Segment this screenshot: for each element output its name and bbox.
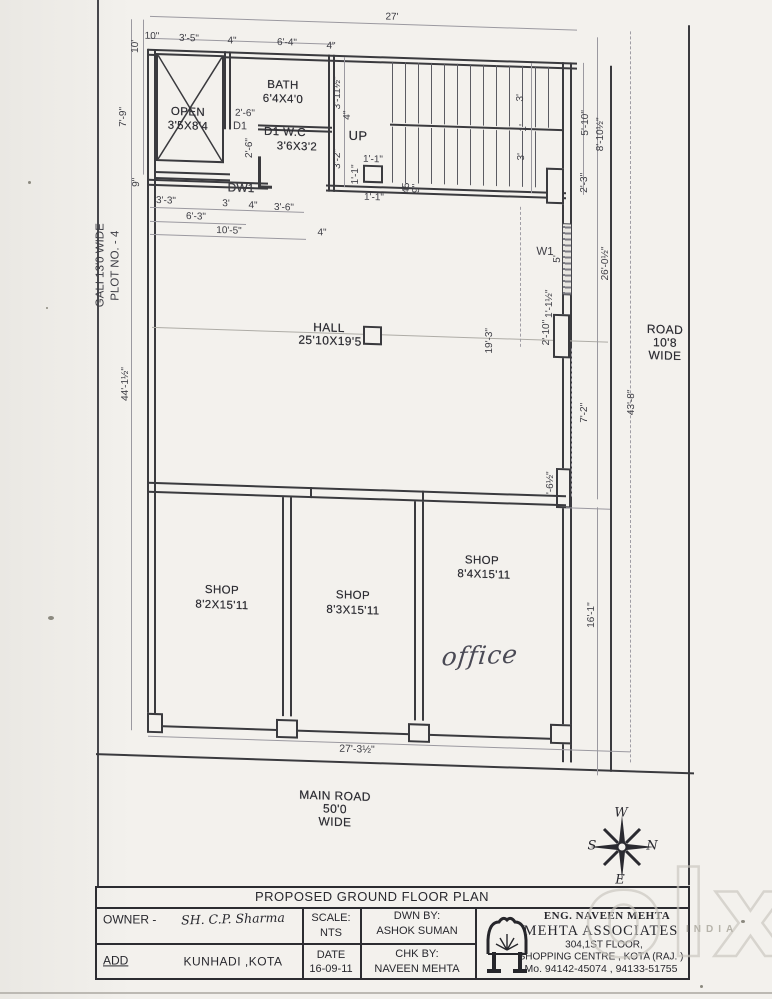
dimension-label: 1' [519, 124, 529, 132]
checked-by-label: CHK BY: [395, 948, 438, 960]
road-label: 50'0 [323, 802, 347, 815]
dimension-label: 5' [553, 255, 563, 263]
dimension-line [571, 348, 572, 496]
drawn-by-label: DWN BY: [394, 910, 440, 922]
dimension-label: 16'-1" [587, 602, 597, 628]
shop-divider-wall [282, 497, 292, 716]
wc-wall-stub [258, 185, 272, 188]
checked-by-value: NAVEEN MEHTA [374, 963, 459, 975]
olx-watermark-country: INDIA [686, 924, 738, 935]
dimension-label: 2'-10" [542, 320, 552, 346]
firm-address-line2: SHOPPING CENTRE , KOTA (RAJ. ) [519, 952, 684, 963]
room-name-label: OPEN [171, 107, 205, 120]
dimension-label: 9" [412, 184, 422, 193]
dimension-label: 3' [222, 199, 229, 209]
road-edge-line [610, 66, 612, 772]
room-name-label: BATH [267, 80, 298, 93]
dimension-label: 3' [516, 94, 526, 102]
room-name-label: SHOP [336, 590, 370, 603]
dimension-line [150, 16, 577, 31]
title-block-line [95, 907, 690, 909]
dimension-label: 5'-10" [581, 110, 591, 136]
shop-divider-wall [414, 501, 424, 720]
dimension-label: 27' [385, 12, 398, 22]
stair-treads-upper [392, 62, 560, 128]
dimension-line [597, 507, 598, 775]
firm-engineer-name: ENG. NAVEEN MEHTA [544, 910, 670, 922]
door-label: D1 [233, 121, 247, 132]
dimension-line [131, 19, 132, 730]
wall-column [553, 314, 570, 359]
dimension-line [148, 38, 334, 45]
date-value: 16-09-11 [309, 963, 352, 975]
dimension-label: 4" [317, 228, 326, 238]
firm-name: MEHTA ASSOCIATES [524, 924, 679, 940]
room-size-label: 3'5X8'4 [168, 121, 208, 134]
road-label: WIDE [319, 815, 352, 828]
room-size-label: 25'10X19'5 [298, 334, 361, 348]
wall-tick [310, 487, 312, 498]
road-label: 10'8 [653, 336, 677, 349]
dimension-label: 1'-1" [364, 193, 384, 204]
wall [147, 49, 156, 733]
dimension-line [520, 207, 521, 347]
dimension-label: 26'-0½" [601, 246, 611, 280]
dimension-label: 10" [145, 32, 160, 42]
dimension-label: 2'-6" [235, 109, 255, 120]
compass-north-label: N [646, 839, 657, 854]
road-label: WIDE [649, 349, 682, 362]
dimension-label: 19'-3" [485, 328, 495, 354]
dimension-label: 27'-3½" [339, 744, 375, 756]
firm-phone: Mo. 94142-45074 , 94133-51755 [525, 964, 678, 976]
dimension-label: 10'-5" [216, 226, 241, 237]
room-size-label: 6'4X4'0 [263, 94, 303, 107]
dimension-label: 3'-5" [179, 34, 199, 45]
room-size-label: 8'4X15'11 [457, 569, 510, 582]
owner-value: SH. C.P. Sharma [181, 911, 285, 927]
owner-label: OWNER - [103, 913, 156, 926]
room-name-label: SHOP [205, 585, 239, 598]
dimension-label: 4" [343, 111, 353, 120]
dimension-label: 1'-1" [351, 164, 361, 184]
wall [328, 55, 335, 192]
road-edge-line [688, 25, 690, 885]
dimension-line [344, 57, 345, 187]
dimension-line [597, 37, 598, 499]
stair-direction-label: UP [349, 129, 368, 143]
dimension-label: 1'-1½" [545, 289, 555, 318]
dimension-label: 1'-1" [363, 155, 383, 166]
dimension-label: 4" [227, 36, 236, 46]
dimension-label: 4" [248, 201, 257, 211]
dimension-label: 7'-9" [119, 107, 129, 127]
dimension-line [566, 507, 610, 509]
room-size-label: 8'2X15'11 [195, 600, 248, 613]
scale-label: SCALE: [311, 912, 350, 924]
wall [148, 482, 566, 507]
wall-stub [546, 168, 564, 205]
door-label: DW1 [228, 181, 255, 194]
w1-window [562, 223, 572, 295]
dimension-label: 2'-3" [580, 173, 590, 193]
dimension-label: 4" [326, 42, 335, 52]
dimension-line [143, 20, 144, 175]
dimension-label: 43'-8" [627, 390, 637, 416]
address-value: KUNHADI ,KOTA [184, 955, 283, 968]
wall-tick [422, 491, 424, 502]
dimension-label: 2'-6" [245, 138, 255, 158]
drawing-title: PROPOSED GROUND FLOOR PLAN [255, 890, 489, 904]
hall-column [363, 326, 382, 346]
front-column [408, 723, 430, 743]
date-label: DATE [317, 949, 346, 961]
dimension-label: 6'-3" [186, 212, 206, 223]
wc-wall-stub [258, 156, 261, 188]
handwritten-note: office [441, 641, 520, 669]
title-block-line [95, 943, 476, 945]
dimension-label: 3'-6" [274, 203, 294, 214]
stair-column [363, 165, 383, 184]
room-name-label: SHOP [465, 555, 499, 568]
room-size-label: 3'6X3'2 [277, 141, 317, 154]
address-label: ADD [103, 954, 128, 967]
dimension-label: 44'-1½" [121, 367, 131, 401]
dimension-label: 9" [132, 178, 142, 187]
main-road-edge-line [96, 753, 694, 774]
dimension-label: 7'-2" [580, 403, 590, 423]
front-column [147, 713, 163, 734]
dimension-label: 3'-11½" [333, 76, 343, 109]
scanned-floor-plan-page: 27' 10" 3'-5" 4" 6'-4" 4" 2'-6" D1 DW1 1… [0, 0, 772, 999]
road-label: GALI 13'0 WIDE [95, 223, 107, 307]
dimension-line [531, 63, 532, 193]
dimension-label: 8'-10½" [596, 117, 606, 151]
dimension-label: 3'-2" [333, 149, 343, 169]
scale-value: NTS [320, 927, 342, 939]
room-name-label: D1 W.C [264, 127, 306, 140]
dimension-label: 10' [131, 40, 141, 53]
road-label: PLOT NO. - 4 [110, 231, 122, 301]
compass-west-label: W [614, 806, 627, 821]
dimension-label: 3'-3" [156, 196, 176, 207]
front-column [276, 719, 298, 739]
dimension-label: 3' [517, 153, 527, 161]
wall [224, 51, 231, 129]
front-column [550, 724, 572, 745]
dimension-label: '-6½" [546, 471, 556, 494]
firm-address-line1: 304,1ST FLOOR, [565, 940, 643, 951]
dimension-label: 6'-4" [277, 38, 297, 49]
room-size-label: 8'3X15'11 [326, 605, 379, 618]
compass-south-label: S [588, 839, 597, 854]
drawn-by-value: ASHOK SUMAN [376, 925, 457, 937]
room-name-label: HALL [313, 321, 345, 334]
